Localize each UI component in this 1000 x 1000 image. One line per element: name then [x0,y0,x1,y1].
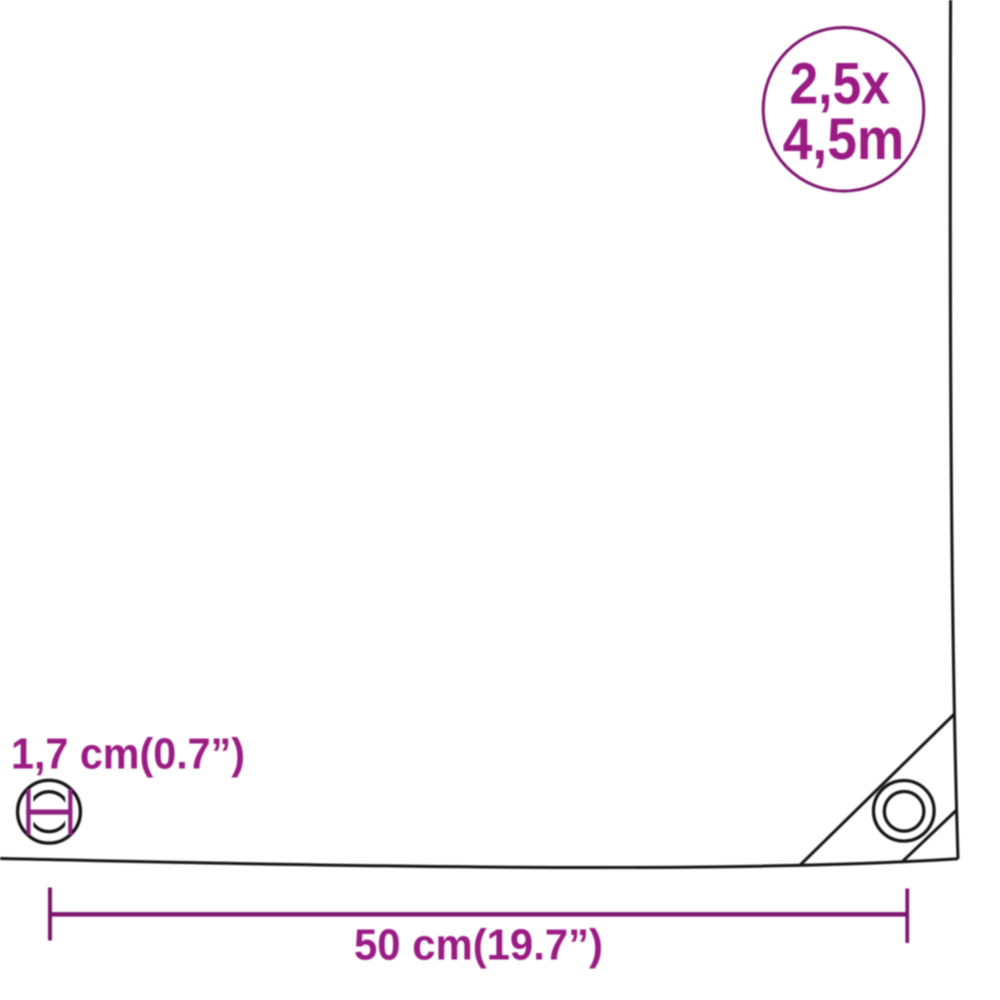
svg-text:1,7 cm(0.7”): 1,7 cm(0.7”) [11,731,245,779]
svg-text:4,5m: 4,5m [783,107,905,172]
svg-text:50 cm(19.7”): 50 cm(19.7”) [354,921,603,969]
